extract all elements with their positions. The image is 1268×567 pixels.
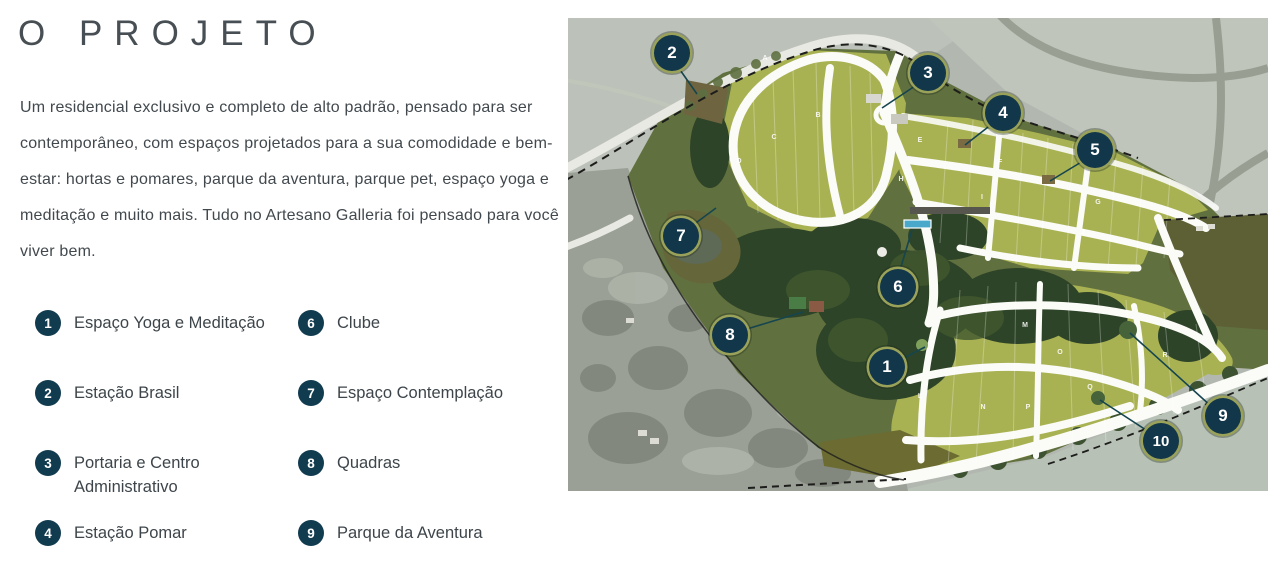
legend-item-label: Estação Brasil	[74, 380, 179, 405]
map-marker-3[interactable]: 3	[910, 55, 946, 91]
legend-item-clube: 6 Clube	[298, 310, 380, 336]
legend-number-badge: 8	[298, 450, 324, 476]
legend-item-contemplacao: 7 Espaço Contemplação	[298, 380, 503, 406]
map-marker-7[interactable]: 7	[663, 218, 699, 254]
map-marker-number: 10	[1153, 433, 1170, 450]
map-marker-4[interactable]: 4	[985, 95, 1021, 131]
block-label: I	[981, 194, 983, 201]
block-label: D	[736, 158, 741, 165]
legend-item-label: Estação Pomar	[74, 520, 187, 545]
legend-number-badge: 3	[35, 450, 61, 476]
legend-number-badge: 4	[35, 520, 61, 546]
block-label: B	[815, 112, 820, 119]
map-marker-number: 4	[998, 103, 1007, 123]
legend-item-portaria: 3 Portaria e Centro Administrativo	[35, 450, 289, 499]
map-marker-10[interactable]: 10	[1143, 423, 1179, 459]
legend-number-badge: 1	[35, 310, 61, 336]
block-label: E	[918, 137, 923, 144]
map-marker-number: 5	[1090, 140, 1099, 160]
legend-item-label: Quadras	[337, 450, 400, 475]
legend-item-yoga: 1 Espaço Yoga e Meditação	[35, 310, 265, 336]
page-title: O PROJETO	[18, 14, 328, 54]
masterplan-map-image: A B C D E F G H I J K L M N O P Q R	[568, 18, 1268, 491]
block-label: H	[898, 176, 903, 183]
block-label: O	[1057, 349, 1063, 356]
block-label: L	[918, 393, 923, 400]
legend-item-label: Espaço Contemplação	[337, 380, 503, 405]
map-marker-number: 1	[882, 357, 891, 377]
block-label: Q	[1087, 384, 1093, 391]
map-marker-number: 8	[725, 325, 734, 345]
map-marker-number: 2	[667, 43, 676, 63]
block-label: G	[1095, 199, 1101, 206]
map-marker-6[interactable]: 6	[880, 269, 916, 305]
block-label: A	[762, 55, 767, 62]
block-label: K	[982, 306, 987, 313]
map-marker-number: 7	[676, 226, 685, 246]
legend-number-badge: 6	[298, 310, 324, 336]
map-marker-8[interactable]: 8	[712, 317, 748, 353]
map-marker-1[interactable]: 1	[869, 349, 905, 385]
map-marker-2[interactable]: 2	[654, 35, 690, 71]
legend-item-estacao-brasil: 2 Estação Brasil	[35, 380, 179, 406]
project-section: O PROJETO Um residencial exclusivo e com…	[0, 0, 1268, 567]
legend-item-label: Clube	[337, 310, 380, 335]
legend-item-label: Espaço Yoga e Meditação	[74, 310, 265, 335]
legend-number-badge: 9	[298, 520, 324, 546]
block-label: P	[1026, 404, 1031, 411]
map-marker-number: 3	[923, 63, 932, 83]
block-label: N	[980, 404, 985, 411]
block-label: M	[1022, 322, 1028, 329]
legend-number-badge: 7	[298, 380, 324, 406]
block-label: R	[1162, 352, 1167, 359]
map-marker-number: 9	[1218, 406, 1227, 426]
map-marker-number: 6	[893, 277, 902, 297]
legend-item-label: Portaria e Centro Administrativo	[74, 450, 289, 499]
block-label: F	[998, 159, 1003, 166]
intro-paragraph: Um residencial exclusivo e completo de a…	[20, 90, 560, 270]
legend-item-aventura: 9 Parque da Aventura	[298, 520, 483, 546]
legend-item-estacao-pomar: 4 Estação Pomar	[35, 520, 187, 546]
legend-item-label: Parque da Aventura	[337, 520, 483, 545]
block-label: C	[771, 134, 776, 141]
masterplan-art: A B C D E F G H I J K L M N O P Q R	[568, 18, 1268, 491]
map-marker-9[interactable]: 9	[1205, 398, 1241, 434]
block-label: J	[1081, 229, 1085, 236]
map-marker-5[interactable]: 5	[1077, 132, 1113, 168]
legend-item-quadras: 8 Quadras	[298, 450, 400, 476]
legend-number-badge: 2	[35, 380, 61, 406]
